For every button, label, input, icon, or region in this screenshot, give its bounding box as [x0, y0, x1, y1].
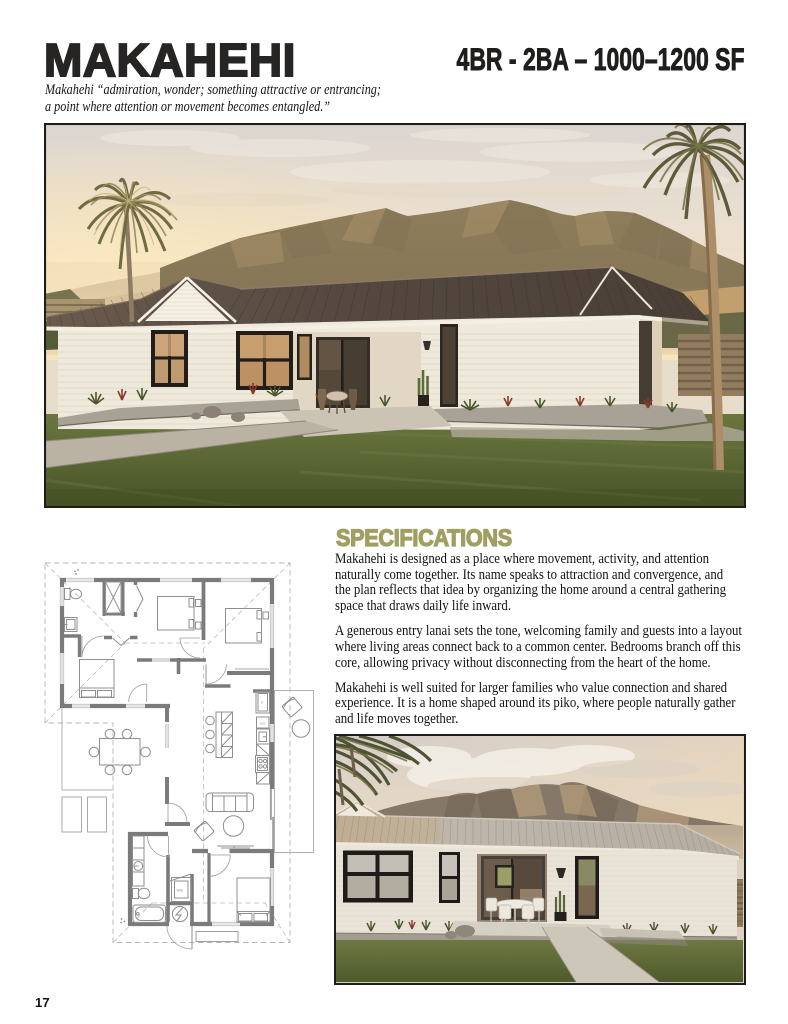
- svg-text:W/D: W/D: [177, 889, 184, 893]
- svg-text:A01: A01: [260, 722, 266, 726]
- svg-text:F: F: [261, 701, 263, 705]
